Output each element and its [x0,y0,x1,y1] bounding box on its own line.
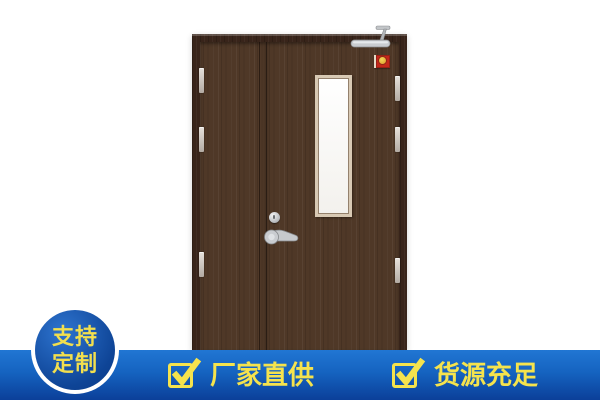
door-panel-left [200,42,266,350]
checkmark-icon [392,363,417,388]
promo-item-ample-supply: 货源充足 [392,350,538,400]
checkmark-icon [168,363,193,388]
badge-text-line1: 支持 [52,323,98,350]
glass-window [315,75,352,217]
lever-handle [262,228,300,246]
fire-door-photo [192,34,407,350]
door-seam [266,42,267,350]
door-closer [350,24,392,50]
lock-cylinder [269,212,280,223]
customization-badge: 支持 定制 [31,306,119,394]
hinge [199,127,204,152]
hinge [199,252,204,277]
hinge [395,76,400,101]
promo-item-factory-direct: 厂家直供 [168,350,314,400]
hinge [395,127,400,152]
promo-label: 货源充足 [434,350,538,400]
product-listing-image: 厂家直供 货源充足 支持 定制 [0,0,600,400]
customization-badge-circle: 支持 定制 [35,310,115,390]
hinge [395,258,400,283]
badge-text-line2: 定制 [52,350,98,377]
promo-label: 厂家直供 [210,350,314,400]
fire-safety-sign [374,55,390,68]
door-seam [259,42,260,350]
hinge [199,68,204,93]
